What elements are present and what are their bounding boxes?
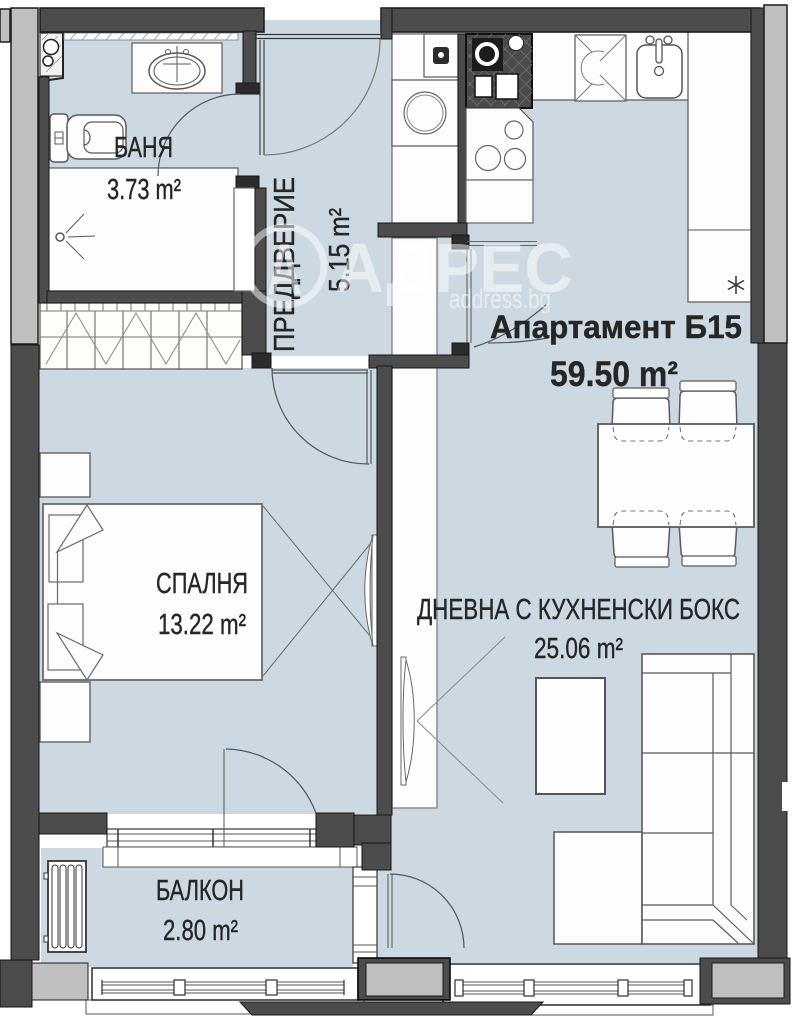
svg-text:ДНЕВНА С КУХНЕНСКИ БОКС: ДНЕВНА С КУХНЕНСКИ БОКС <box>417 594 740 626</box>
svg-text:3.73 m²: 3.73 m² <box>107 174 181 206</box>
svg-text:13.22 m²: 13.22 m² <box>158 609 246 641</box>
svg-text:Апартамент Б15: Апартамент Б15 <box>490 309 742 345</box>
svg-text:А: А <box>267 230 302 310</box>
svg-text:25.06 m²: 25.06 m² <box>534 633 623 665</box>
svg-text:БАЛКОН: БАЛКОН <box>156 875 244 907</box>
svg-text:address.bg: address.bg <box>449 284 551 314</box>
svg-text:СПАЛНЯ: СПАЛНЯ <box>156 568 248 600</box>
svg-text:59.50 m²: 59.50 m² <box>550 355 678 394</box>
svg-text:2.80 m²: 2.80 m² <box>163 915 238 947</box>
svg-text:БАНЯ: БАНЯ <box>114 132 173 164</box>
